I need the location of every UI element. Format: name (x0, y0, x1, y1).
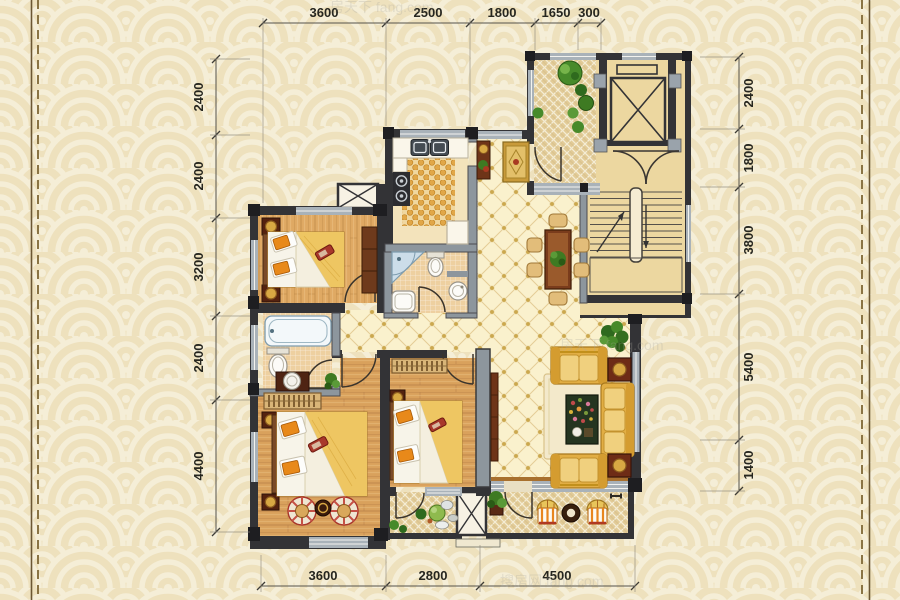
svg-text:2800: 2800 (419, 568, 448, 583)
svg-text:2400: 2400 (191, 83, 206, 112)
svg-text:3800: 3800 (741, 226, 756, 255)
svg-text:1650: 1650 (542, 5, 571, 20)
svg-text:1800: 1800 (488, 5, 517, 20)
svg-text:300: 300 (578, 5, 600, 20)
svg-text:房天下 fang.com: 房天下 fang.com (330, 0, 433, 15)
svg-text:2400: 2400 (741, 79, 756, 108)
svg-text:1400: 1400 (741, 451, 756, 480)
svg-text:2400: 2400 (191, 162, 206, 191)
svg-text:房天下 fang.com: 房天下 fang.com (560, 337, 663, 353)
svg-text:4400: 4400 (191, 452, 206, 481)
svg-text:1800: 1800 (741, 144, 756, 173)
svg-text:3600: 3600 (309, 568, 338, 583)
svg-text:2400: 2400 (191, 344, 206, 373)
svg-text:5400: 5400 (741, 353, 756, 382)
svg-text:搜房网 fang.com: 搜房网 fang.com (500, 573, 603, 589)
svg-text:3200: 3200 (191, 253, 206, 282)
